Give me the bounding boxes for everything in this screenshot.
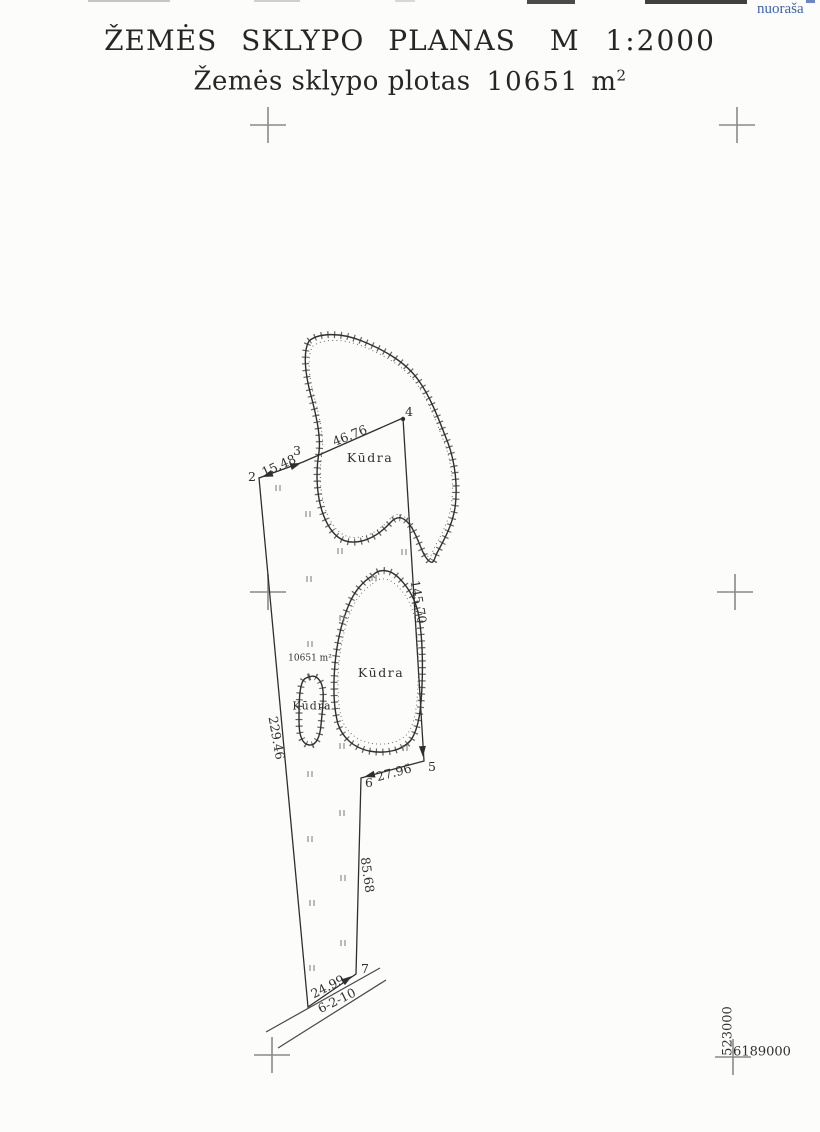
scanned-plan-page: nuoraša ŽEMĖS SKLYPO PLANASM 1:2000 Žemė… bbox=[0, 0, 820, 1132]
grid-northing-label: 6189000 bbox=[733, 1046, 791, 1059]
area-unit-base: m bbox=[591, 67, 616, 97]
area-unit: m2 bbox=[591, 67, 626, 97]
parcel-boundary bbox=[259, 418, 424, 1007]
vertex-label-5: 5 bbox=[428, 761, 436, 774]
area-value: 10651 bbox=[487, 67, 580, 97]
scale-text: M 1:2000 bbox=[550, 24, 716, 57]
pond-middle bbox=[334, 571, 422, 753]
vertex-label-2: 2 bbox=[248, 471, 256, 484]
pond-top bbox=[305, 335, 456, 563]
title-block: ŽEMĖS SKLYPO PLANASM 1:2000 Žemės sklypo… bbox=[0, 24, 820, 97]
scan-artifacts bbox=[88, 0, 815, 4]
copy-stamp: nuoraša bbox=[757, 1, 804, 18]
title-text: ŽEMĖS SKLYPO PLANAS bbox=[104, 24, 516, 57]
parcel-area-label: 10651 m² bbox=[288, 655, 332, 664]
pond-small-label: Kūdra bbox=[292, 701, 331, 712]
page-title: ŽEMĖS SKLYPO PLANASM 1:2000 bbox=[0, 24, 820, 57]
grid-crosses bbox=[250, 107, 755, 1075]
pond-top-label: Kūdra bbox=[347, 452, 393, 465]
pond-middle-label: Kūdra bbox=[358, 667, 404, 680]
vertex-label-7: 7 bbox=[361, 963, 369, 976]
plan-drawing bbox=[0, 0, 820, 1132]
area-unit-exponent: 2 bbox=[617, 66, 627, 84]
wetland-marks bbox=[276, 485, 407, 971]
direction-arrows bbox=[261, 460, 427, 985]
vertex-label-4: 4 bbox=[405, 406, 413, 419]
area-caption: Žemės sklypo plotas bbox=[193, 67, 470, 97]
area-statement: Žemės sklypo plotas10651m2 bbox=[0, 66, 820, 97]
vertex-label-6: 6 bbox=[365, 777, 373, 790]
